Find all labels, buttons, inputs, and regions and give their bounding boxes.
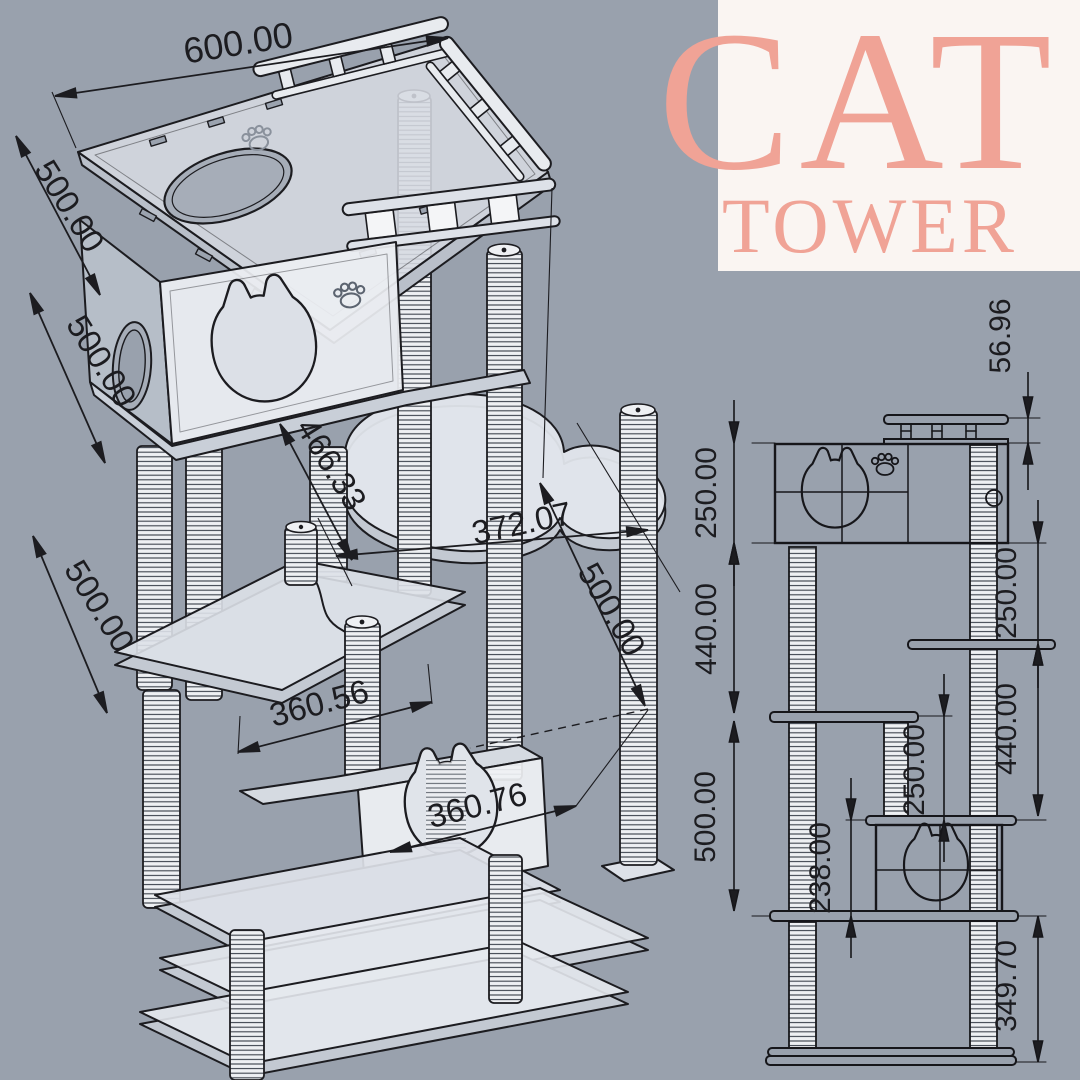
svg-text:250.00: 250.00: [990, 547, 1023, 639]
svg-text:56.96: 56.96: [984, 298, 1017, 373]
svg-text:349.70: 349.70: [990, 940, 1023, 1032]
svg-text:440.00: 440.00: [990, 683, 1023, 775]
svg-text:440.00: 440.00: [690, 583, 723, 675]
cat-tower-blueprint-poster: 600.00 500.00 500.00 500.00 466.33: [0, 0, 1080, 1080]
blueprint-canvas: 600.00 500.00 500.00 500.00 466.33: [0, 0, 1080, 1080]
mid-board: [770, 712, 918, 722]
svg-text:500.00: 500.00: [689, 771, 722, 863]
title-main: CAT: [658, 0, 1060, 212]
lower-mid-board: [866, 816, 1016, 825]
svg-text:238.00: 238.00: [804, 822, 837, 914]
svg-text:250.00: 250.00: [898, 724, 931, 816]
title-sub: TOWER: [722, 182, 1018, 269]
perch-board: [908, 640, 1055, 649]
base-board: [766, 1048, 1016, 1065]
svg-text:250.00: 250.00: [690, 447, 723, 539]
post-stub: [285, 522, 317, 586]
